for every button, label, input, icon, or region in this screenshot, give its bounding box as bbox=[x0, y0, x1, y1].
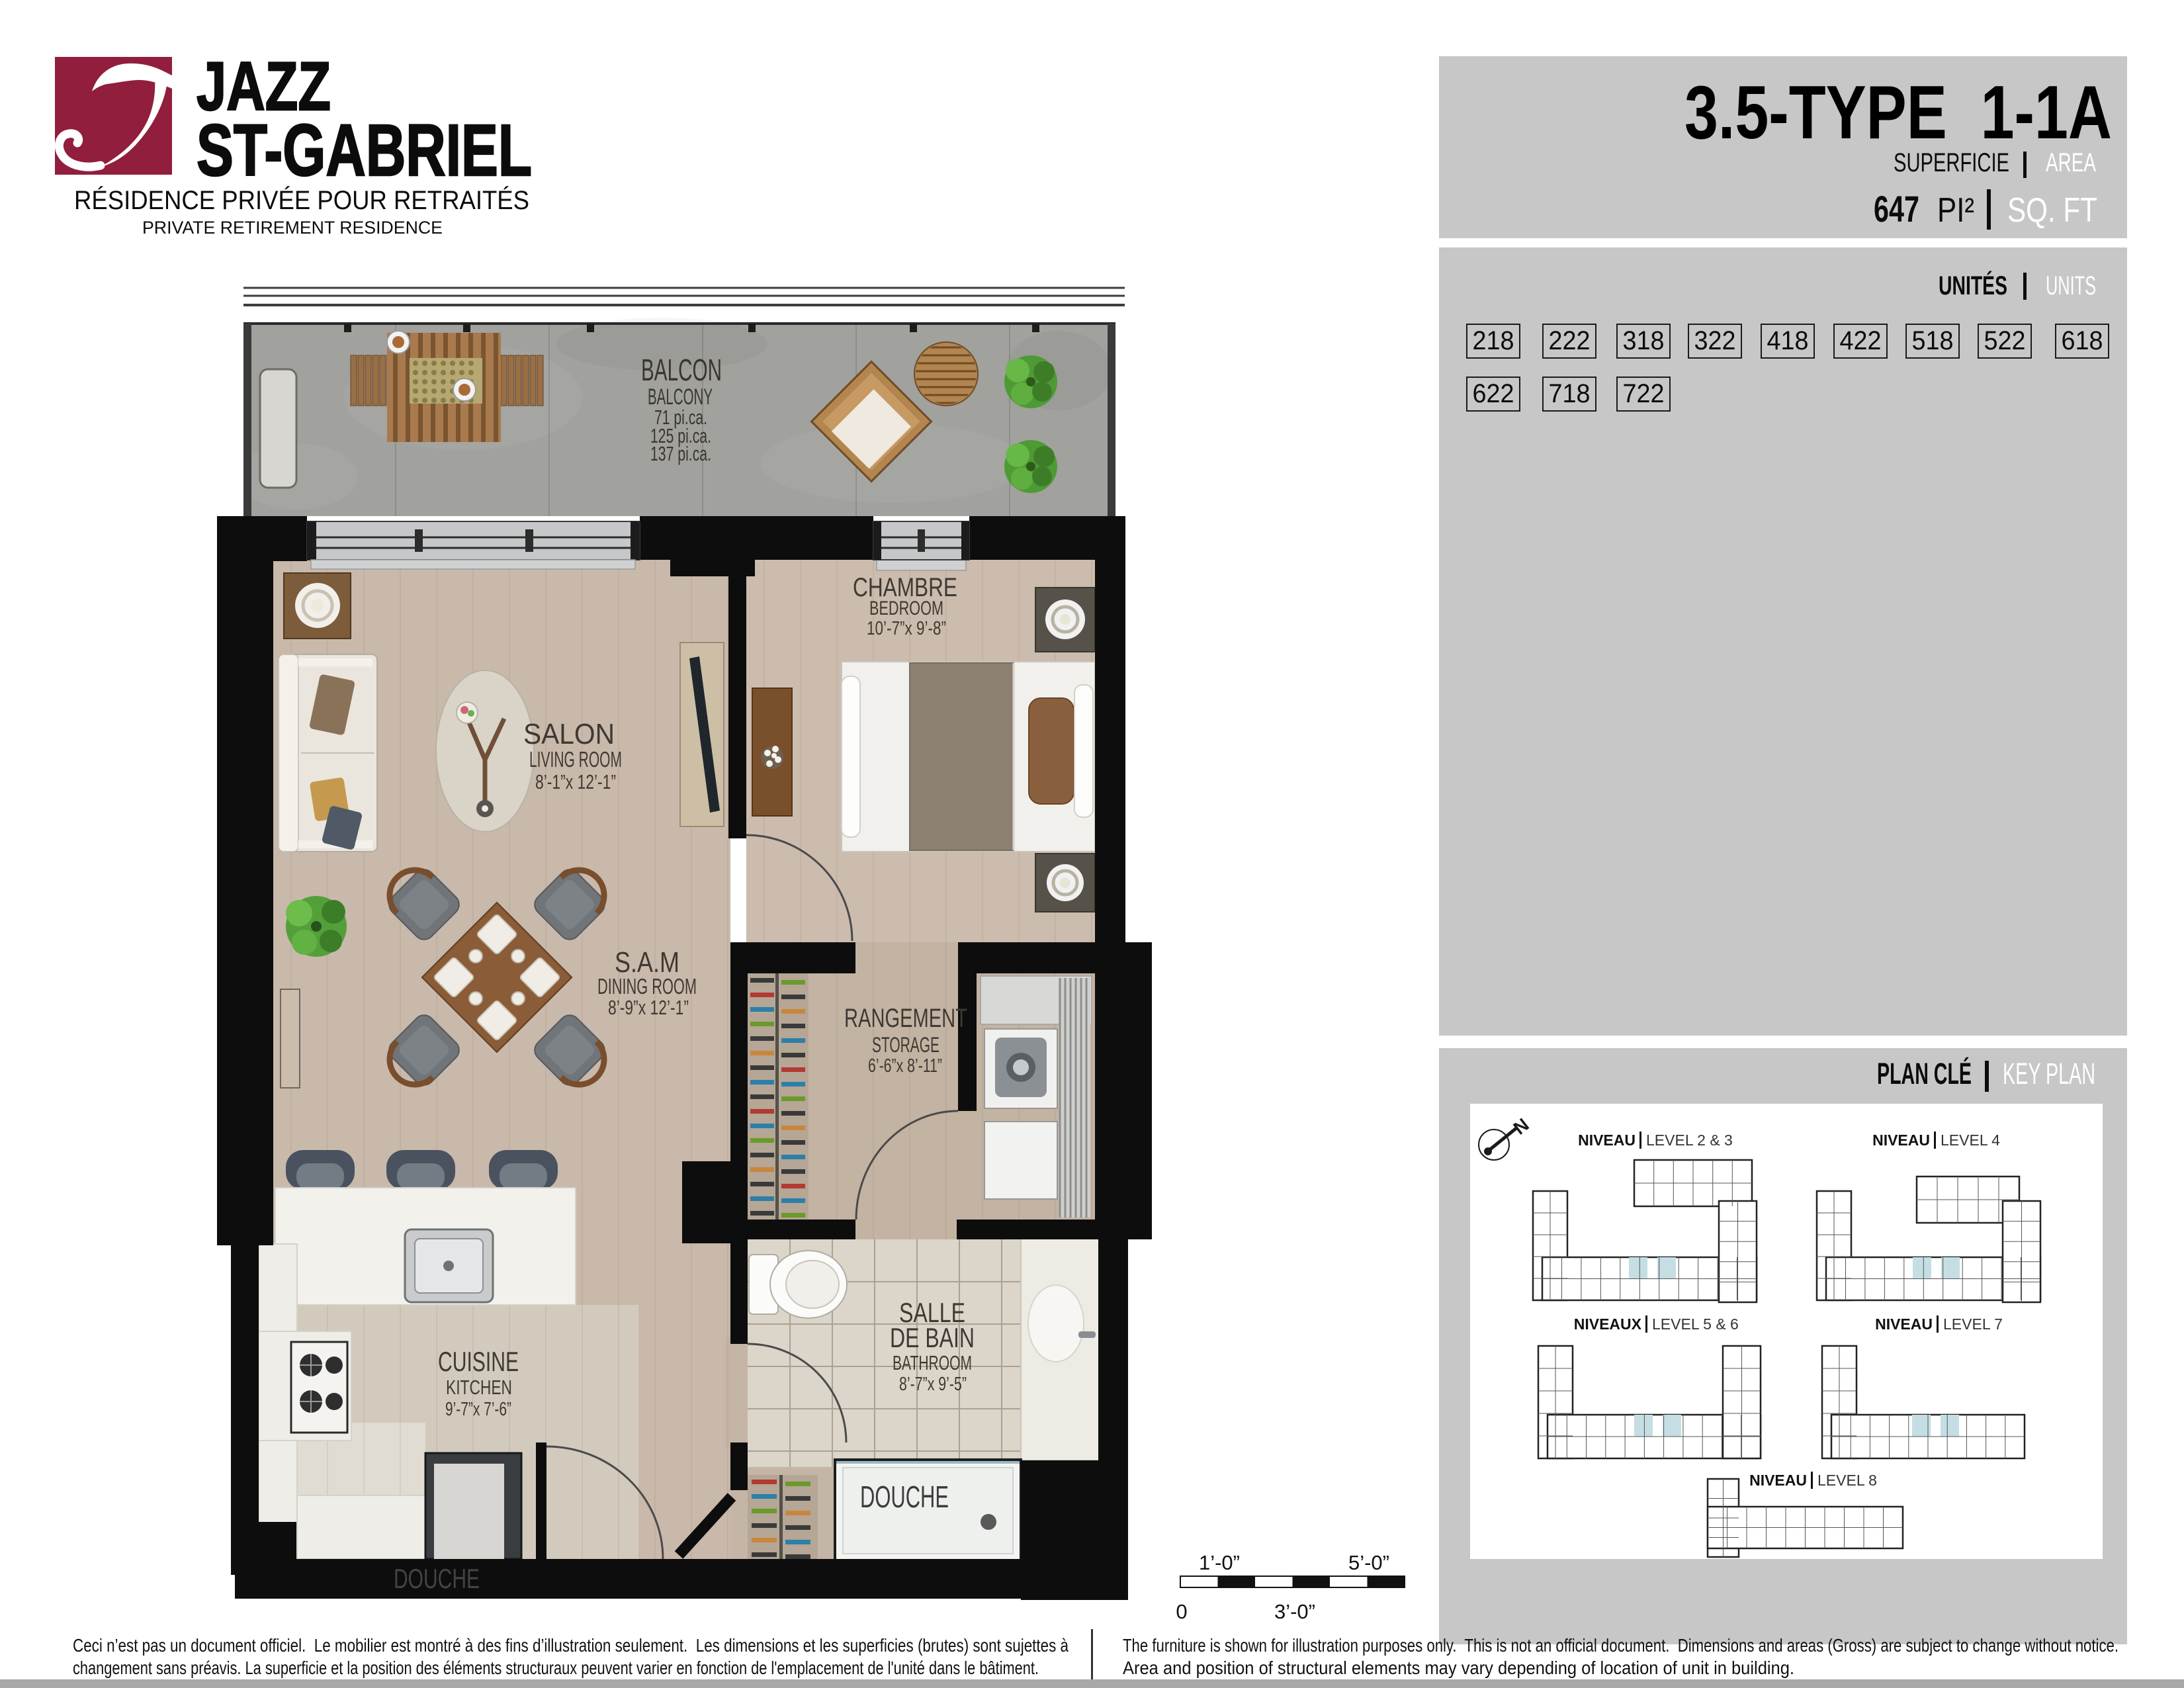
svg-text:647: 647 bbox=[1874, 188, 1919, 230]
svg-text:518: 518 bbox=[1912, 326, 1954, 355]
svg-text:222: 222 bbox=[1549, 326, 1591, 355]
svg-text:322: 322 bbox=[1694, 326, 1736, 355]
svg-text:8’-9”x 12’-1”: 8’-9”x 12’-1” bbox=[608, 996, 689, 1019]
svg-text:KEY PLAN: KEY PLAN bbox=[2003, 1057, 2095, 1090]
svg-text:LEVEL 7: LEVEL 7 bbox=[1943, 1315, 2003, 1333]
svg-text:SQ. FT: SQ. FT bbox=[2007, 191, 2097, 230]
svg-text:NIVEAU: NIVEAU bbox=[1578, 1132, 1636, 1149]
svg-text:3.5-TYPE 1-1A: 3.5-TYPE 1-1A bbox=[1684, 71, 2112, 155]
svg-text:6’-6”x 8’-11”: 6’-6”x 8’-11” bbox=[868, 1055, 942, 1077]
svg-text:LEVEL 4: LEVEL 4 bbox=[1941, 1132, 2000, 1149]
svg-text:Ceci n’est pas un document off: Ceci n’est pas un document officiel. Le … bbox=[73, 1635, 1069, 1656]
svg-text:9’-7”x 7’-6”: 9’-7”x 7’-6” bbox=[445, 1399, 511, 1420]
svg-text:UNITÉS: UNITÉS bbox=[1939, 271, 2007, 300]
svg-text:NIVEAUX: NIVEAUX bbox=[1574, 1315, 1642, 1333]
svg-text:LEVEL 2 & 3: LEVEL 2 & 3 bbox=[1646, 1132, 1733, 1149]
svg-text:RÉSIDENCE PRIVÉE POUR RETRAITÉ: RÉSIDENCE PRIVÉE POUR RETRAITÉS bbox=[74, 185, 529, 215]
svg-text:318: 318 bbox=[1623, 326, 1665, 355]
svg-text:0: 0 bbox=[1176, 1600, 1187, 1623]
svg-text:522: 522 bbox=[1984, 326, 2026, 355]
svg-text:3’-0”: 3’-0” bbox=[1274, 1600, 1315, 1623]
svg-text:PRIVATE RETIREMENT RESIDENCE: PRIVATE RETIREMENT RESIDENCE bbox=[142, 218, 443, 238]
svg-text:PI²: PI² bbox=[1937, 191, 1974, 230]
svg-text:ST-GABRIEL: ST-GABRIEL bbox=[197, 110, 532, 191]
svg-text:BATHROOM: BATHROOM bbox=[893, 1351, 972, 1374]
svg-text:RANGEMENT: RANGEMENT bbox=[844, 1004, 967, 1033]
svg-text:418: 418 bbox=[1767, 326, 1809, 355]
svg-text:AREA: AREA bbox=[2046, 148, 2096, 177]
svg-text:DOUCHE: DOUCHE bbox=[860, 1480, 949, 1514]
svg-text:PLAN CLÉ: PLAN CLÉ bbox=[1877, 1057, 1972, 1090]
svg-text:LIVING ROOM: LIVING ROOM bbox=[529, 747, 622, 772]
svg-text:LEVEL 8: LEVEL 8 bbox=[1817, 1472, 1877, 1489]
svg-text:UNITS: UNITS bbox=[2046, 271, 2096, 300]
svg-text:BALCON: BALCON bbox=[641, 353, 722, 387]
svg-text:NIVEAU: NIVEAU bbox=[1875, 1315, 1933, 1333]
svg-text:NIVEAU: NIVEAU bbox=[1749, 1472, 1807, 1489]
svg-text:KITCHEN: KITCHEN bbox=[446, 1376, 512, 1399]
svg-text:DINING ROOM: DINING ROOM bbox=[597, 974, 697, 999]
svg-text:STORAGE: STORAGE bbox=[872, 1033, 939, 1057]
svg-text:422: 422 bbox=[1840, 326, 1882, 355]
svg-text:LEVEL 5 & 6: LEVEL 5 & 6 bbox=[1652, 1315, 1739, 1333]
svg-text:718: 718 bbox=[1549, 379, 1591, 408]
svg-text:CUISINE: CUISINE bbox=[438, 1346, 519, 1377]
svg-text:622: 622 bbox=[1473, 379, 1514, 408]
svg-text:Area and position of structura: Area and position of structural elements… bbox=[1123, 1658, 1794, 1678]
svg-text:NIVEAU: NIVEAU bbox=[1872, 1132, 1930, 1149]
svg-text:SALON: SALON bbox=[523, 718, 615, 750]
svg-text:BEDROOM: BEDROOM bbox=[869, 598, 943, 619]
svg-text:The furniture is shown for ill: The furniture is shown for illustration … bbox=[1123, 1635, 2118, 1656]
svg-text:218: 218 bbox=[1473, 326, 1514, 355]
svg-text:722: 722 bbox=[1623, 379, 1665, 408]
svg-text:5’-0”: 5’-0” bbox=[1348, 1551, 1389, 1574]
svg-text:10’-7”x 9’-8”: 10’-7”x 9’-8” bbox=[867, 618, 946, 639]
svg-text:137 pi.ca.: 137 pi.ca. bbox=[650, 442, 711, 465]
svg-text:DE BAIN: DE BAIN bbox=[890, 1322, 975, 1353]
svg-text:DOUCHE: DOUCHE bbox=[394, 1563, 480, 1594]
svg-text:618: 618 bbox=[2062, 326, 2103, 355]
svg-text:8’-1”x 12’-1”: 8’-1”x 12’-1” bbox=[535, 770, 616, 793]
svg-text:SUPERFICIE: SUPERFICIE bbox=[1894, 148, 2009, 177]
svg-text:changement sans préavis. La su: changement sans préavis. La superficie e… bbox=[73, 1658, 1039, 1678]
svg-text:8’-7”x 9’-5”: 8’-7”x 9’-5” bbox=[899, 1374, 967, 1395]
svg-text:1’-0”: 1’-0” bbox=[1199, 1551, 1240, 1574]
